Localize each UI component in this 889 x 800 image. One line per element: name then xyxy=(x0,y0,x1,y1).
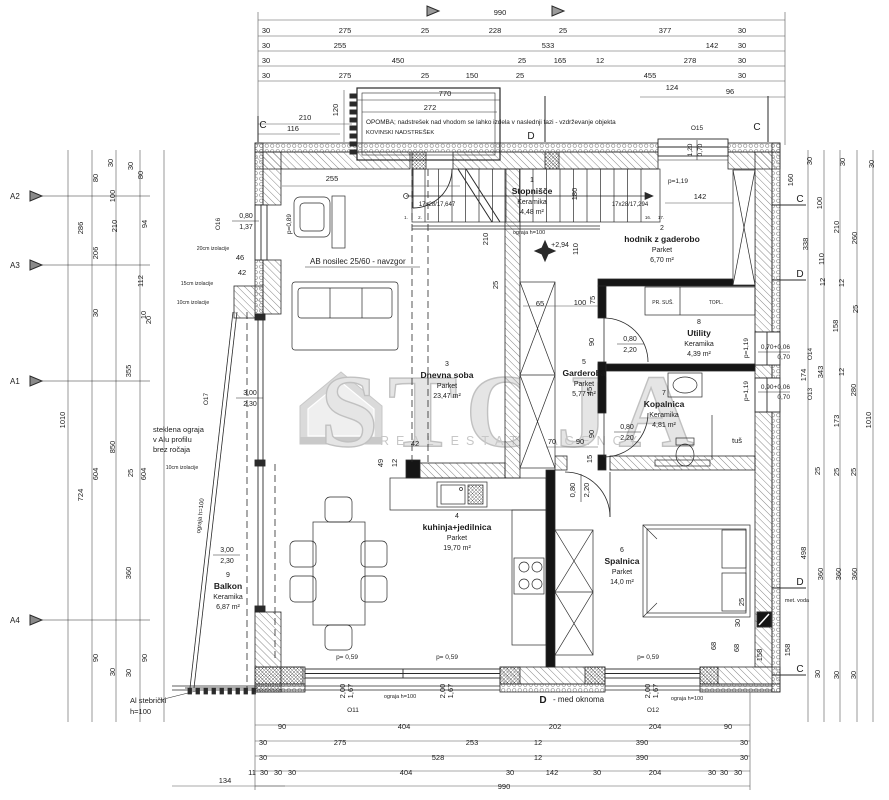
dim-text: 30 xyxy=(849,671,858,679)
label-text: TOPL. xyxy=(709,300,723,306)
room-area: 4,81 m² xyxy=(652,422,676,429)
floor-plan-page: STOJA REAL ESTATE AGENCY xyxy=(0,0,889,800)
room-area: 6,87 m² xyxy=(216,604,240,611)
dim-text: 25 xyxy=(516,71,524,80)
dim-text: 142 xyxy=(706,41,719,50)
room-name: Stopnišče xyxy=(512,186,553,196)
room-material: Keramika xyxy=(517,199,547,206)
label-text: 2,20 xyxy=(620,435,634,442)
label-text: 15cm izolacije xyxy=(181,281,214,287)
alu-post xyxy=(228,688,232,694)
dim-text: 30 xyxy=(262,71,270,80)
dim-text: 49 xyxy=(376,459,385,467)
dim-text: 150 xyxy=(466,71,479,80)
label-text: met. voda xyxy=(785,598,810,604)
label-text: 16. xyxy=(645,215,651,220)
room-name: Utility xyxy=(687,328,711,338)
label-text: 17x28/17,647 xyxy=(419,202,456,208)
canopy-tooth xyxy=(350,102,357,106)
bedroom-closet xyxy=(555,530,593,655)
dim-text: 174 xyxy=(799,369,808,382)
label-text: C xyxy=(259,120,266,131)
label-text: 17. xyxy=(658,215,664,220)
dim-text: 255 xyxy=(334,41,347,50)
dim-text: 68 xyxy=(732,644,741,652)
canopy-tooth xyxy=(350,142,357,146)
dim-text: 30 xyxy=(262,41,270,50)
dim-text: 286 xyxy=(76,222,85,235)
dim-text: 30 xyxy=(738,41,746,50)
living-kitchen-wall xyxy=(413,463,505,478)
room-number: 3 xyxy=(445,361,449,368)
label-text: D xyxy=(796,577,803,588)
room-name: Garderoba xyxy=(563,368,606,378)
label-text: C xyxy=(753,122,760,133)
canopy-tooth xyxy=(350,110,357,114)
room-name: Balkon xyxy=(214,581,242,591)
label-text: p=1,19 xyxy=(743,338,750,358)
label-text: A3 xyxy=(10,261,20,270)
label-text: 0,70+0,06 xyxy=(761,344,790,351)
dim-text: 850 xyxy=(108,441,117,454)
label-text: +2,94 xyxy=(551,242,569,249)
dim-text: 228 xyxy=(489,26,502,35)
dim-text: 30 xyxy=(288,768,296,777)
dim-text: 30 xyxy=(259,738,267,747)
dim-text: 25 xyxy=(421,26,429,35)
dim-text: 30 xyxy=(720,768,728,777)
dim-text: 30 xyxy=(867,160,876,168)
room-material: Parket xyxy=(447,535,467,542)
room-number: 6 xyxy=(620,547,624,554)
dim-text: 404 xyxy=(398,722,411,731)
dim-text: 204 xyxy=(649,722,662,731)
room-number: 4 xyxy=(455,513,459,520)
label-text: 3,00 xyxy=(243,390,257,397)
dim-text: 210 xyxy=(481,233,490,246)
dim-text: 202 xyxy=(549,722,562,731)
dim-text: 15 xyxy=(585,455,594,463)
dim-text: 12 xyxy=(390,459,399,467)
dim-text: 990 xyxy=(494,8,507,17)
kitchen-pillar xyxy=(406,460,420,478)
dim-text: 206 xyxy=(91,247,100,260)
dim-text: 25 xyxy=(737,598,746,606)
dim-text: 30 xyxy=(262,26,270,35)
label-text: KOVINSKI NADSTREŠEK xyxy=(366,129,434,136)
dim-text: 110 xyxy=(817,253,826,265)
dim-text: 68 xyxy=(709,642,718,650)
label-text: ograja h=100 xyxy=(671,696,703,702)
label-text: 0,70 xyxy=(777,394,790,401)
label-text: O17 xyxy=(203,392,210,405)
label-text: 2,20 xyxy=(623,347,637,354)
room-area: 6,70 m² xyxy=(650,257,674,264)
dim-text: 990 xyxy=(498,782,511,791)
dim-text: 2,20 xyxy=(582,483,591,498)
dim-text: 255 xyxy=(326,174,339,183)
room-area: 4,48 m² xyxy=(520,209,544,216)
dim-text: 30 xyxy=(259,753,267,762)
label-text: O12 xyxy=(647,707,660,714)
dim-text: 25 xyxy=(126,469,135,477)
dim-text: 90 xyxy=(91,654,100,662)
label-text: p= 0,59 xyxy=(436,654,458,661)
dim-text: 116 xyxy=(287,124,299,133)
dim-text: 20 xyxy=(144,316,153,324)
dim-text: 30 xyxy=(740,753,748,762)
dim-text: 30 xyxy=(106,159,115,167)
dim-text: 338 xyxy=(801,238,810,251)
label-text: brez ročaja xyxy=(153,445,191,454)
label-text: D xyxy=(539,695,546,706)
dim-text: 0,80 xyxy=(568,483,577,498)
label-text: p= 0,59 xyxy=(637,654,659,661)
dim-text: 30 xyxy=(108,668,117,676)
dim-text: 100 xyxy=(574,298,587,307)
label-text: 0,80 xyxy=(620,424,634,431)
dim-text: 12 xyxy=(837,368,846,376)
label-text: ograja h=100 xyxy=(384,694,416,700)
room-material: Keramika xyxy=(649,412,679,419)
canopy-tooth xyxy=(350,118,357,122)
dim-text: 355 xyxy=(124,365,133,378)
dim-text: 1010 xyxy=(58,412,67,429)
dim-text: 275 xyxy=(339,71,352,80)
dim-text: 90 xyxy=(587,430,596,438)
dim-text: 160 xyxy=(786,174,795,187)
dim-text: 1,67 xyxy=(651,684,660,699)
dim-text: 90 xyxy=(278,722,286,731)
label-text: A1 xyxy=(10,377,20,386)
label-text: steklena ograja xyxy=(153,425,205,434)
dim-text: 30 xyxy=(506,768,514,777)
label-text: O13 xyxy=(807,387,814,400)
label-text: O11 xyxy=(347,707,359,714)
label-text: p= 0,59 xyxy=(336,654,358,661)
dim-text: 94 xyxy=(140,220,149,228)
dim-text: 604 xyxy=(139,468,148,481)
dim-text: 450 xyxy=(392,56,405,65)
dim-text: 275 xyxy=(339,26,352,35)
label-text: O14 xyxy=(807,347,814,360)
dim-text: 404 xyxy=(400,768,413,777)
label-text: p=1,19 xyxy=(668,178,688,185)
dim-text: 253 xyxy=(466,738,479,747)
dim-text: 30 xyxy=(738,26,746,35)
dim-text: 498 xyxy=(799,547,808,560)
dim-text: 90 xyxy=(140,654,149,662)
dim-text: 30 xyxy=(813,670,822,678)
dim-text: 210 xyxy=(299,113,312,122)
dim-text: 112 xyxy=(136,275,145,287)
label-text: ograja h=100 xyxy=(513,230,545,236)
dim-text: 65 xyxy=(536,299,544,308)
dim-text: 42 xyxy=(411,439,419,448)
dim-text: 30 xyxy=(124,669,133,677)
dim-text: 30 xyxy=(91,309,100,317)
label-text: C xyxy=(796,664,803,675)
dim-text: 1,67 xyxy=(446,684,455,699)
dim-text: 100 xyxy=(815,197,824,210)
dim-text: 390 xyxy=(636,738,649,747)
dim-text: 30 xyxy=(805,157,814,165)
room-number: 5 xyxy=(582,359,586,366)
label-text: OPOMBA; nadstrešek nad vhodom se lahko i… xyxy=(366,119,616,126)
dim-text: 360 xyxy=(834,568,843,581)
label-text: 2,30 xyxy=(220,558,234,565)
label-text: 1,20 xyxy=(687,143,694,156)
label-text: 10cm izolacije xyxy=(177,300,210,306)
dim-text: 25 xyxy=(813,467,822,475)
dim-text: 25 xyxy=(832,468,841,476)
dim-text: 360 xyxy=(850,568,859,581)
room-number: 2 xyxy=(660,225,664,232)
label-text: 2. xyxy=(418,215,422,220)
dim-text: 25 xyxy=(559,26,567,35)
dim-text: 377 xyxy=(659,26,672,35)
canopy-tooth xyxy=(350,150,357,154)
dim-text: 30 xyxy=(734,768,742,777)
dim-text: 210 xyxy=(832,221,841,234)
dim-text: 158 xyxy=(783,644,792,657)
room-material: Parket xyxy=(574,381,594,388)
label-text: p=1,19 xyxy=(743,381,750,401)
label-text: - med oknoma xyxy=(553,695,605,704)
dim-text: 278 xyxy=(684,56,697,65)
dim-text: 124 xyxy=(666,83,679,92)
dim-text: 165 xyxy=(554,56,567,65)
label-text: C xyxy=(796,194,803,205)
dim-text: 30 xyxy=(260,768,268,777)
room-name: kuhinja+jedilnica xyxy=(423,522,492,532)
dim-text: 30 xyxy=(838,158,847,166)
room-material: Keramika xyxy=(213,594,243,601)
label-text: PR. SUŠ. xyxy=(652,299,673,306)
dim-text: 30 xyxy=(262,56,270,65)
dim-text: 120 xyxy=(331,104,340,117)
dim-text: 142 xyxy=(694,192,707,201)
dim-text: 134 xyxy=(219,776,232,785)
label-text: 1. xyxy=(404,215,408,220)
room-name: Kopalnica xyxy=(644,399,685,409)
dim-text: 360 xyxy=(816,568,825,581)
room-area: 19,70 m² xyxy=(443,545,471,552)
dim-text: 360 xyxy=(124,567,133,580)
label-text: 0,70 xyxy=(697,143,704,156)
dim-text: 30 xyxy=(593,768,601,777)
label-text: tuš xyxy=(732,436,742,445)
dim-text: 173 xyxy=(832,415,841,428)
dim-text: 260 xyxy=(850,232,859,245)
dim-text: 204 xyxy=(649,768,662,777)
dim-text: 770 xyxy=(439,89,452,98)
dim-text: 96 xyxy=(726,87,734,96)
dim-text: 100 xyxy=(108,190,117,203)
dim-text: 12 xyxy=(596,56,604,65)
room-number: 7 xyxy=(662,390,666,397)
label-text: D xyxy=(796,269,803,280)
dim-text: 46 xyxy=(236,253,244,262)
label-text: 17x28/17,294 xyxy=(612,202,649,208)
dim-text: 25 xyxy=(518,56,526,65)
room-area: 4,39 m² xyxy=(687,351,711,358)
dim-text: 142 xyxy=(546,768,559,777)
room-material: Parket xyxy=(652,247,672,254)
dim-text: 75 xyxy=(588,296,597,304)
dim-text: 210 xyxy=(110,220,119,233)
canopy-tooth xyxy=(350,126,357,130)
core-wall xyxy=(505,169,520,478)
label-text: O15 xyxy=(691,125,704,132)
label-text: v Alu profilu xyxy=(153,435,192,444)
label-text: 0,90+0,06 xyxy=(761,384,790,391)
dim-text: 90 xyxy=(576,437,584,446)
alu-post xyxy=(196,688,200,694)
label-text: A2 xyxy=(10,192,20,201)
label-text: A4 xyxy=(10,616,20,625)
dim-text: 30 xyxy=(740,738,748,747)
dim-text: 455 xyxy=(644,71,657,80)
dim-text: 90 xyxy=(724,722,732,731)
dim-text: 158 xyxy=(755,649,764,662)
room-area: 23,47 m² xyxy=(433,393,461,400)
dim-text: 12 xyxy=(818,278,827,286)
dim-text: 25 xyxy=(851,305,860,313)
dim-text: 42 xyxy=(238,268,246,277)
dim-text: 30 xyxy=(832,671,841,679)
room-area: 14,0 m² xyxy=(610,579,634,586)
dim-text: 30 xyxy=(738,56,746,65)
room-material: Parket xyxy=(437,383,457,390)
alu-posts xyxy=(188,688,256,694)
dim-text: 604 xyxy=(91,468,100,481)
dim-text: 70 xyxy=(548,437,556,446)
dim-text: 158 xyxy=(831,320,840,333)
dim-text: 90 xyxy=(587,338,596,346)
room-material: Parket xyxy=(612,569,632,576)
dim-text: 12 xyxy=(534,738,542,747)
alu-post xyxy=(236,688,240,694)
dim-text: 1010 xyxy=(864,412,873,429)
dim-text: 25 xyxy=(849,468,858,476)
floor-plan-drawing: STOJA REAL ESTATE AGENCY xyxy=(0,0,889,800)
label-text: p=0,89 xyxy=(286,214,293,234)
room-number: 8 xyxy=(697,319,701,326)
label-text: 20cm izolacije xyxy=(197,246,230,252)
dim-text: 275 xyxy=(334,738,347,747)
dim-text: 30 xyxy=(708,768,716,777)
room-number: 9 xyxy=(226,572,230,579)
dim-text: 180 xyxy=(570,188,579,201)
label-text: AB nosilec 25/60 - navzgor xyxy=(310,257,406,266)
canopy-tooth xyxy=(350,94,357,98)
label-text: 10cm izolacije xyxy=(166,465,199,471)
room-name: Dnevna soba xyxy=(421,370,474,380)
label-text: 3,00 xyxy=(220,547,234,554)
dim-text: 30 xyxy=(126,162,135,170)
room-number: 1 xyxy=(530,177,534,184)
dim-text: 12 xyxy=(534,753,542,762)
label-text: D xyxy=(527,131,534,142)
dim-text: 80 xyxy=(136,171,145,179)
dim-text: 12 xyxy=(837,279,846,287)
dim-text: 30 xyxy=(274,768,282,777)
dim-text: 11 xyxy=(248,768,256,777)
dim-text: 343 xyxy=(816,366,825,379)
dim-text: 280 xyxy=(849,384,858,397)
dim-text: 1,67 xyxy=(346,684,355,699)
kitchen-bedroom-wall xyxy=(546,470,555,667)
label-text: Al stebrički xyxy=(130,696,167,705)
room-area: 5,77 m² xyxy=(572,391,596,398)
hall-wardrobe xyxy=(733,170,755,285)
dim-text: 390 xyxy=(636,753,649,762)
room-name: hodnik z gaderobo xyxy=(624,234,700,244)
dim-text: 30 xyxy=(733,619,742,627)
room-name: Spalnica xyxy=(605,556,640,566)
alu-post xyxy=(204,688,208,694)
dim-text: 724 xyxy=(76,489,85,502)
dim-text: 25 xyxy=(491,281,500,289)
label-text: 2,30 xyxy=(243,401,257,408)
alu-post xyxy=(244,688,248,694)
label-text: 0,80 xyxy=(623,336,637,343)
alu-post xyxy=(212,688,216,694)
label-text: 0,70 xyxy=(777,354,790,361)
label-text: h=100 xyxy=(130,707,151,716)
dim-text: 533 xyxy=(542,41,555,50)
dim-text: 272 xyxy=(424,103,437,112)
canopy-tooth xyxy=(350,134,357,138)
dim-text: 30 xyxy=(738,71,746,80)
dim-text: 528 xyxy=(432,753,445,762)
alu-post xyxy=(220,688,224,694)
label-text: 1,37 xyxy=(239,224,253,231)
dim-text: 80 xyxy=(91,174,100,182)
dim-text: 25 xyxy=(421,71,429,80)
dim-text: 110 xyxy=(571,243,580,255)
label-text: 0,80 xyxy=(239,213,253,220)
room-material: Keramika xyxy=(684,341,714,348)
label-text: O16 xyxy=(215,217,222,230)
